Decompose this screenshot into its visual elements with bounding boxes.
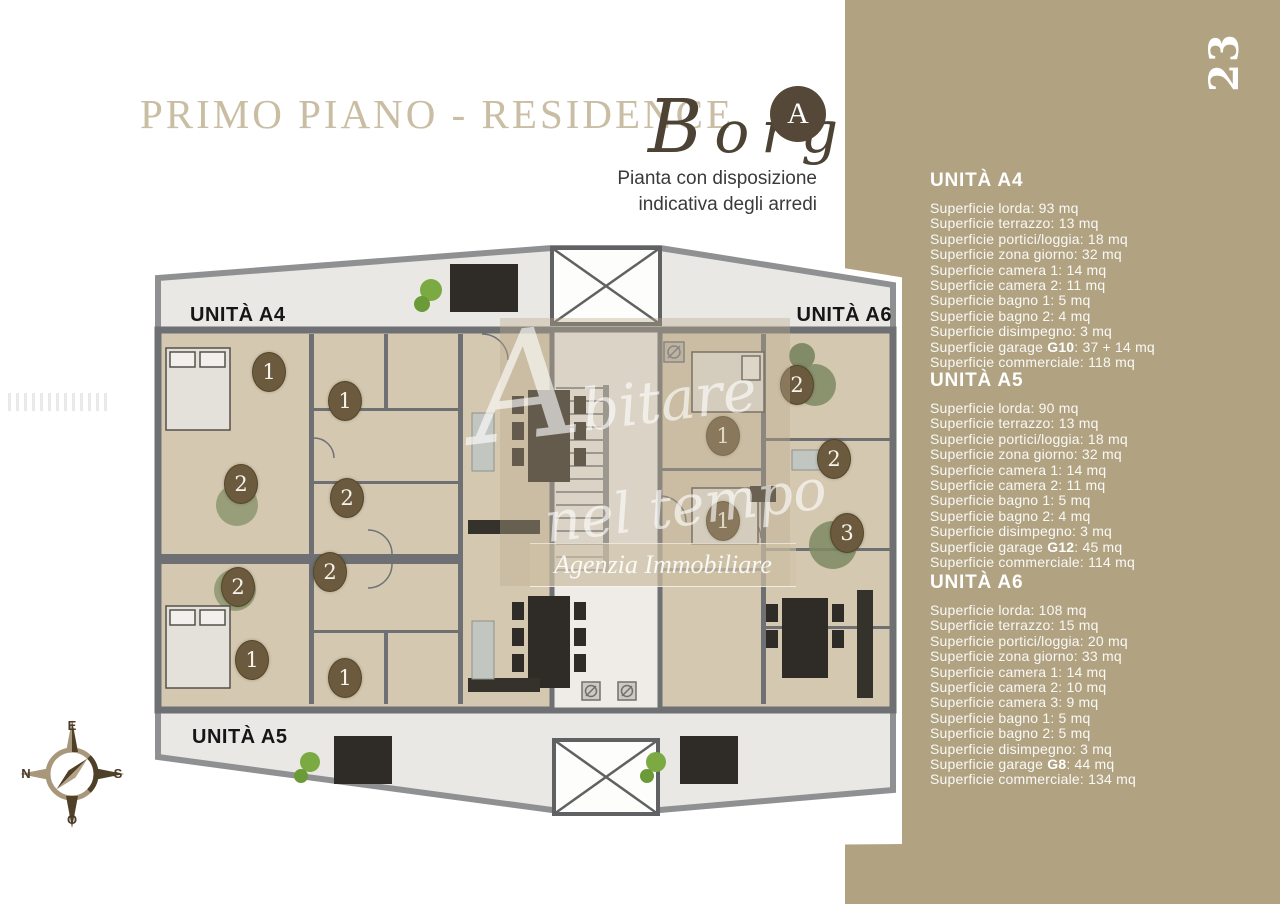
floor-plan: UNITÀ A4 UNITÀ A6 UNITÀ A5 1 1 2 2 2 2 1…	[152, 238, 912, 858]
garage-code: G12	[1047, 539, 1074, 555]
spec-line: Superficie portici/loggia: 20 mq	[930, 634, 1270, 649]
plan-subtitle: Pianta con disposizione indicativa degli…	[555, 166, 817, 217]
garage-code: G8	[1047, 756, 1066, 772]
garage-prefix: Superficie garage	[930, 539, 1047, 555]
unit-a5-specs: UNITÀ A5 Superficie lorda: 90 mqSuperfic…	[930, 370, 1270, 570]
spec-line: Superficie camera 1: 14 mq	[930, 463, 1270, 478]
spec-line-garage: Superficie garage G10: 37 + 14 mq	[930, 340, 1270, 355]
spec-line-commercial: Superficie commerciale: 114 mq	[930, 555, 1270, 570]
spec-line: Superficie terrazzo: 15 mq	[930, 618, 1270, 633]
subtitle-line-1: Pianta con disposizione	[555, 166, 817, 192]
spec-line: Superficie camera 2: 11 mq	[930, 478, 1270, 493]
garage-suffix: : 45 mq	[1074, 539, 1122, 555]
unit-label-a5: UNITÀ A5	[192, 726, 287, 749]
room-marker: 1	[235, 640, 269, 680]
unit-spec-lines: Superficie lorda: 93 mqSuperficie terraz…	[930, 201, 1270, 340]
spec-line: Superficie portici/loggia: 18 mq	[930, 232, 1270, 247]
spec-line: Superficie camera 2: 11 mq	[930, 278, 1270, 293]
room-marker: 3	[830, 513, 864, 553]
room-marker: 2	[330, 478, 364, 518]
garage-suffix: : 44 mq	[1066, 756, 1114, 772]
spec-line: Superficie bagno 2: 5 mq	[930, 726, 1270, 741]
spec-line: Superficie bagno 1: 5 mq	[930, 293, 1270, 308]
room-marker: 1	[252, 352, 286, 392]
room-marker: 2	[224, 464, 258, 504]
spec-line: Superficie camera 1: 14 mq	[930, 665, 1270, 680]
room-marker: 2	[221, 567, 255, 607]
spec-line: Superficie zona giorno: 33 mq	[930, 649, 1270, 664]
spec-line-commercial: Superficie commerciale: 118 mq	[930, 355, 1270, 370]
spec-line: Superficie disimpegno: 3 mq	[930, 324, 1270, 339]
spec-line: Superficie terrazzo: 13 mq	[930, 216, 1270, 231]
garage-code: G10	[1047, 339, 1074, 355]
spec-line-garage: Superficie garage G8: 44 mq	[930, 757, 1270, 772]
spec-line: Superficie zona giorno: 32 mq	[930, 247, 1270, 262]
spec-line-commercial: Superficie commerciale: 134 mq	[930, 772, 1270, 787]
room-marker: 1	[328, 381, 362, 421]
unit-specs-title: UNITÀ A5	[930, 370, 1270, 392]
spec-line: Superficie bagno 2: 4 mq	[930, 509, 1270, 524]
unit-a4-specs: UNITÀ A4 Superficie lorda: 93 mqSuperfic…	[930, 170, 1270, 370]
unit-spec-lines: Superficie lorda: 90 mqSuperficie terraz…	[930, 401, 1270, 540]
spec-line: Superficie camera 1: 14 mq	[930, 263, 1270, 278]
spec-line: Superficie terrazzo: 13 mq	[930, 416, 1270, 431]
page-number: 23	[1192, 30, 1256, 94]
spec-line: Superficie portici/loggia: 18 mq	[930, 432, 1270, 447]
spec-line: Superficie lorda: 108 mq	[930, 603, 1270, 618]
garage-suffix: : 37 + 14 mq	[1074, 339, 1155, 355]
watermark-agency: Agenzia Immobiliare	[530, 543, 796, 587]
compass-letter-n: N	[21, 766, 30, 781]
page-title: PRIMO PIANO - RESIDENCE	[140, 90, 734, 138]
spec-line: Superficie lorda: 90 mq	[930, 401, 1270, 416]
brochure-page: 23 PRIMO PIANO - RESIDENCE Borg A Pianta…	[0, 0, 1280, 904]
spec-line: Superficie bagno 1: 5 mq	[930, 493, 1270, 508]
spec-line: Superficie camera 2: 10 mq	[930, 680, 1270, 695]
spec-line: Superficie bagno 1: 5 mq	[930, 711, 1270, 726]
balcony-railing	[8, 393, 110, 411]
compass-letter-o: O	[67, 812, 77, 827]
subtitle-line-2: indicativa degli arredi	[555, 192, 817, 218]
unit-spec-lines: Superficie lorda: 108 mqSuperficie terra…	[930, 603, 1270, 757]
room-marker: 2	[313, 552, 347, 592]
compass-rose: E S O N	[12, 712, 132, 832]
spec-line-garage: Superficie garage G12: 45 mq	[930, 540, 1270, 555]
compass-letter-s: S	[114, 766, 123, 781]
unit-a6-specs: UNITÀ A6 Superficie lorda: 108 mqSuperfi…	[930, 572, 1270, 788]
unit-specs-title: UNITÀ A6	[930, 572, 1270, 594]
spec-line: Superficie lorda: 93 mq	[930, 201, 1270, 216]
brand-badge-icon: A	[770, 86, 826, 142]
spec-line: Superficie zona giorno: 32 mq	[930, 447, 1270, 462]
compass-svg: E S O N	[12, 712, 132, 832]
room-marker: 1	[328, 658, 362, 698]
brand-logo: Borg A	[648, 70, 868, 180]
garage-prefix: Superficie garage	[930, 339, 1047, 355]
compass-letter-e: E	[68, 718, 77, 733]
unit-label-a4: UNITÀ A4	[190, 304, 285, 327]
unit-specs-title: UNITÀ A4	[930, 170, 1270, 192]
spec-line: Superficie bagno 2: 4 mq	[930, 309, 1270, 324]
spec-line: Superficie camera 3: 9 mq	[930, 695, 1270, 710]
spec-line: Superficie disimpegno: 3 mq	[930, 742, 1270, 757]
garage-prefix: Superficie garage	[930, 756, 1047, 772]
spec-line: Superficie disimpegno: 3 mq	[930, 524, 1270, 539]
